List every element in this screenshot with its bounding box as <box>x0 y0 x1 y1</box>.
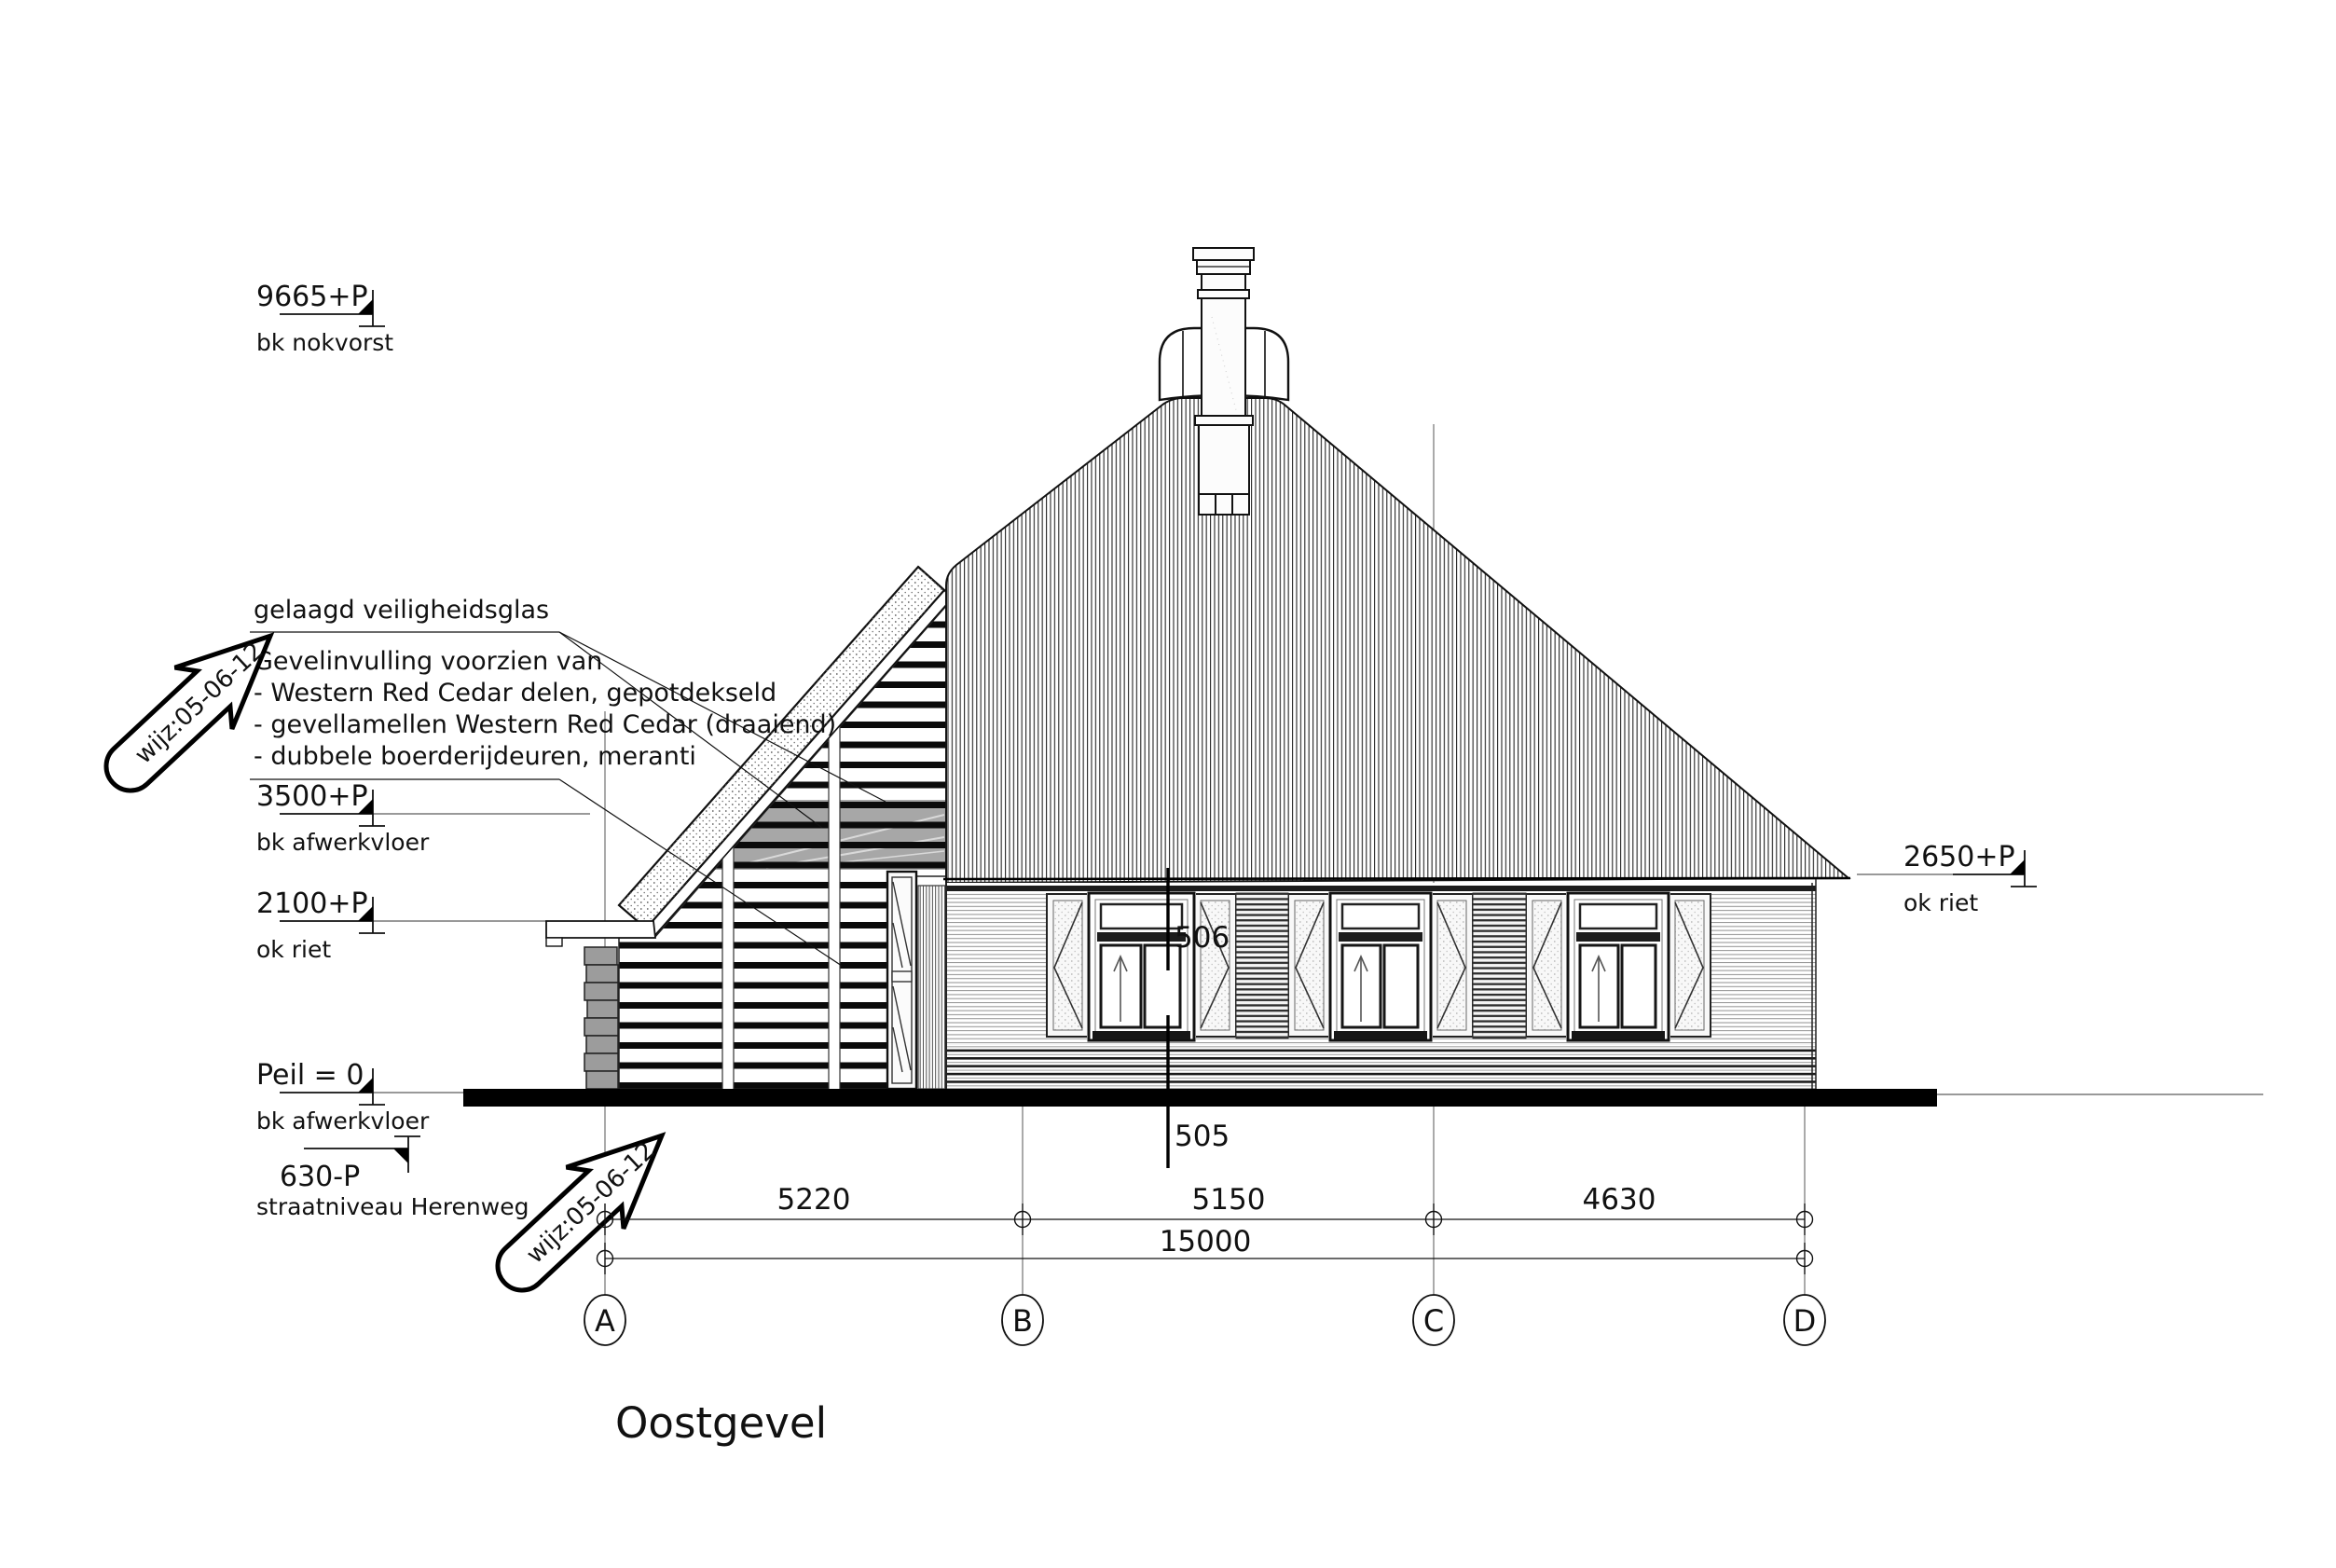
door-plank-strip <box>918 886 946 1089</box>
annotation-facade-title: Gevelinvulling voorzien van <box>254 647 602 676</box>
drawing-title: Oostgevel <box>615 1398 827 1448</box>
grid-bubble-d: D <box>1793 1303 1817 1339</box>
shutter-right-window-2 <box>1431 894 1473 1037</box>
chimney <box>1193 248 1254 515</box>
revision-note: wijz:05-06-12 <box>521 1136 660 1269</box>
level-value: 9665+P <box>256 281 368 313</box>
level-label: bk afwerkvloer <box>256 1107 430 1135</box>
shutter-right-window-3 <box>1669 894 1711 1037</box>
level-value: 2650+P <box>1903 841 2015 873</box>
elevation-drawing-sheet: 506 505 9665+P bk nokvorst 3500+P bk afw… <box>0 0 2336 1568</box>
left-wing <box>546 567 952 1089</box>
level-value: 3500+P <box>256 780 368 813</box>
wing-corner-blocks <box>584 947 618 1089</box>
barn-door <box>887 872 916 1089</box>
grid-bubbles: A B C D <box>584 1295 1825 1345</box>
level-marker-2650: 2650+P ok riet <box>1903 841 2037 916</box>
wall-top-band <box>946 886 1816 891</box>
level-label: bk nokvorst <box>256 329 393 356</box>
dimension-value-cd: 4630 <box>1583 1183 1656 1217</box>
level-marker-2100: 2100+P ok riet <box>256 887 385 963</box>
elevation-drawing: 506 505 9665+P bk nokvorst 3500+P bk afw… <box>0 0 2336 1568</box>
window-3 <box>1566 891 1670 1042</box>
dimension-value-ab: 5220 <box>777 1183 851 1217</box>
level-label: ok riet <box>256 936 331 963</box>
level-marker-peil: Peil = 0 bk afwerkvloer <box>256 1059 430 1135</box>
revision-note: wijz:05-06-12 <box>130 637 268 769</box>
window-1 <box>1087 891 1196 1042</box>
grid-bubble-c: C <box>1423 1303 1444 1339</box>
level-label: ok riet <box>1903 889 1978 916</box>
level-value: 2100+P <box>256 887 368 920</box>
wing-eave-foot <box>546 921 655 938</box>
dimension-value-total: 15000 <box>1160 1225 1252 1259</box>
annotation-glass: gelaagd veiligheidsglas <box>254 596 549 625</box>
ground-line <box>463 1089 1937 1107</box>
windows <box>1087 891 1670 1042</box>
main-wall <box>946 879 1816 1089</box>
section-label-upper: 506 <box>1175 921 1230 955</box>
level-value: 630-P <box>280 1161 360 1193</box>
wall-siding-lower <box>946 1044 1816 1089</box>
level-label: bk afwerkvloer <box>256 829 430 856</box>
grid-bubble-a: A <box>595 1303 615 1339</box>
shutter-right-window-1 <box>1194 894 1236 1037</box>
level-label: straatniveau Herenweg <box>256 1193 529 1220</box>
grid-bubble-b: B <box>1012 1303 1033 1339</box>
level-marker-9665: 9665+P bk nokvorst <box>256 281 393 356</box>
level-marker-3500: 3500+P bk afwerkvloer <box>256 780 430 856</box>
shutter-left-window-2 <box>1288 894 1330 1037</box>
level-marker-630: 630-P straatniveau Herenweg <box>256 1136 529 1220</box>
main-roof <box>943 248 1850 883</box>
dimension-value-bc: 5150 <box>1192 1183 1266 1217</box>
window-2 <box>1328 891 1433 1042</box>
shutter-left-window-1 <box>1047 894 1089 1037</box>
level-value: Peil = 0 <box>256 1059 364 1092</box>
annotation-facade-item: - gevellamellen Western Red Cedar (draai… <box>254 710 836 739</box>
shutter-left-window-3 <box>1526 894 1568 1037</box>
annotation-facade-item: - dubbele boerderijdeuren, meranti <box>254 742 696 771</box>
section-label-lower: 505 <box>1175 1120 1230 1153</box>
roof-fascia-line <box>943 878 1850 879</box>
annotation-facade-item: - Western Red Cedar delen, gepotdekseld <box>254 679 776 708</box>
